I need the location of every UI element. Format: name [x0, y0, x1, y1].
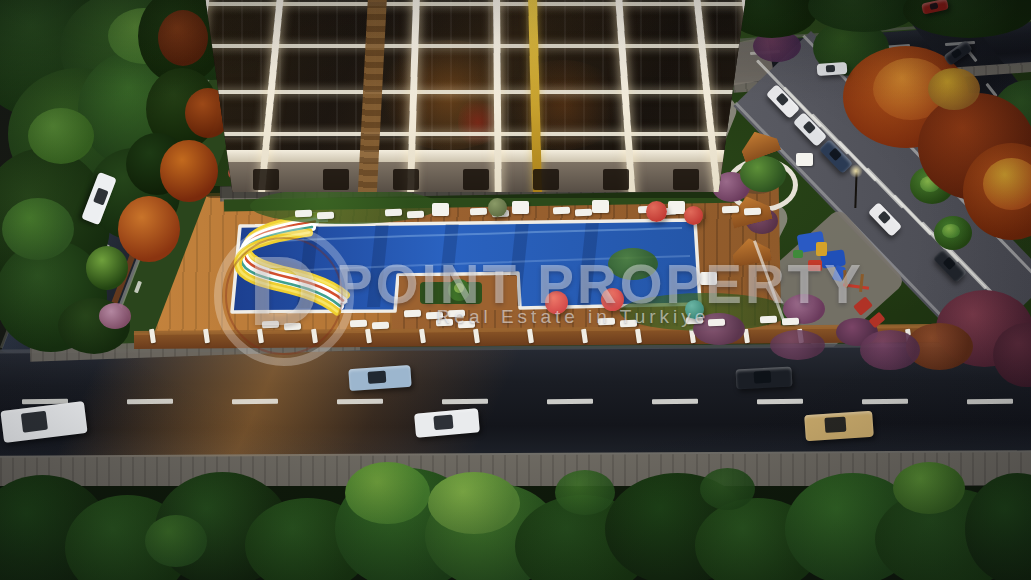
sun-lounger: [385, 209, 402, 217]
sun-lounger: [553, 207, 570, 215]
watermark-subtitle: Real Estate in Turkiye: [430, 306, 716, 328]
sun-lounger: [744, 208, 761, 216]
tree-foliage: [145, 515, 207, 567]
car-windshield: [93, 188, 109, 206]
car-windshield: [21, 411, 48, 432]
apartment-building: [203, 0, 748, 192]
daybed: [796, 153, 813, 166]
lane-marking: [232, 399, 278, 404]
building-parapet: [203, 150, 748, 162]
car-windshield: [878, 211, 891, 224]
lamp-glow: [849, 164, 863, 178]
sun-lounger: [470, 208, 487, 216]
car-windshield: [367, 370, 386, 384]
car-windshield: [829, 148, 842, 161]
car-windshield: [776, 93, 789, 106]
car-windshield: [951, 48, 962, 59]
daybed: [592, 200, 609, 213]
pool-umbrella: [684, 206, 703, 225]
tree-foliage: [250, 188, 440, 224]
lane-marking: [127, 399, 173, 404]
tree-foliage: [86, 246, 128, 290]
sun-lounger: [722, 206, 739, 214]
sun-lounger: [575, 209, 592, 217]
facade-floor-band: [203, 44, 748, 48]
lane-marking: [547, 399, 593, 404]
tree-foliage: [160, 140, 218, 202]
daybed: [512, 201, 529, 214]
lane-marking: [862, 399, 908, 404]
tree-foliage: [860, 330, 920, 370]
pool-umbrella: [646, 201, 667, 222]
tree-foliage: [118, 196, 180, 262]
car-windshield: [803, 121, 816, 134]
tree-foliage: [428, 472, 520, 534]
lane-marking: [442, 399, 488, 404]
entrance-door: [323, 169, 349, 190]
entrance-door: [253, 169, 279, 190]
tree-foliage: [928, 68, 980, 110]
facade-floor-band: [203, 132, 748, 136]
sun-lounger: [350, 320, 367, 328]
car-windshield: [825, 417, 846, 433]
car: [736, 367, 793, 390]
entrance-door: [603, 169, 629, 190]
facade-floor-band: [203, 2, 748, 6]
daybed: [432, 203, 449, 216]
car-windshield: [754, 371, 771, 383]
lane-marking: [652, 399, 698, 404]
entrance-door: [533, 169, 559, 190]
pool-umbrella: [488, 198, 507, 217]
daybed: [668, 201, 685, 214]
sun-lounger: [295, 210, 312, 218]
sun-lounger: [407, 211, 424, 219]
tree-foliage: [770, 330, 825, 360]
car: [804, 411, 874, 442]
watermark-logo-letter: D: [249, 242, 320, 340]
tree-foliage: [345, 462, 430, 524]
entrance-door: [463, 169, 489, 190]
sun-lounger: [782, 318, 799, 326]
entrance-door: [393, 169, 419, 190]
property-aerial-render: D POINT PROPERTY Real Estate in Turkiye: [0, 0, 1031, 580]
entrance-door: [673, 169, 699, 190]
tree-foliage: [99, 303, 131, 329]
car: [817, 62, 848, 76]
lane-marking: [757, 399, 803, 404]
tree-foliage: [28, 108, 94, 164]
tree-foliage: [983, 158, 1031, 210]
tree-foliage: [893, 462, 965, 514]
tree-foliage: [942, 224, 960, 238]
car: [348, 365, 411, 391]
car-windshield: [434, 414, 454, 430]
tree-foliage: [555, 470, 615, 515]
interior-light-red: [458, 95, 498, 150]
sun-lounger: [372, 322, 389, 330]
sun-lounger: [760, 316, 777, 324]
car-windshield: [929, 2, 938, 10]
tree-foliage: [700, 468, 755, 510]
tree-foliage: [2, 198, 74, 260]
facade-floor-band: [203, 90, 748, 94]
interior-light: [503, 60, 623, 150]
car-windshield: [826, 65, 835, 73]
lane-marking: [967, 399, 1013, 404]
car-windshield: [943, 257, 956, 270]
tree-foliage: [158, 10, 208, 66]
lane-marking: [337, 399, 383, 404]
sun-lounger: [317, 212, 334, 220]
watermark-logo: D: [214, 226, 354, 366]
